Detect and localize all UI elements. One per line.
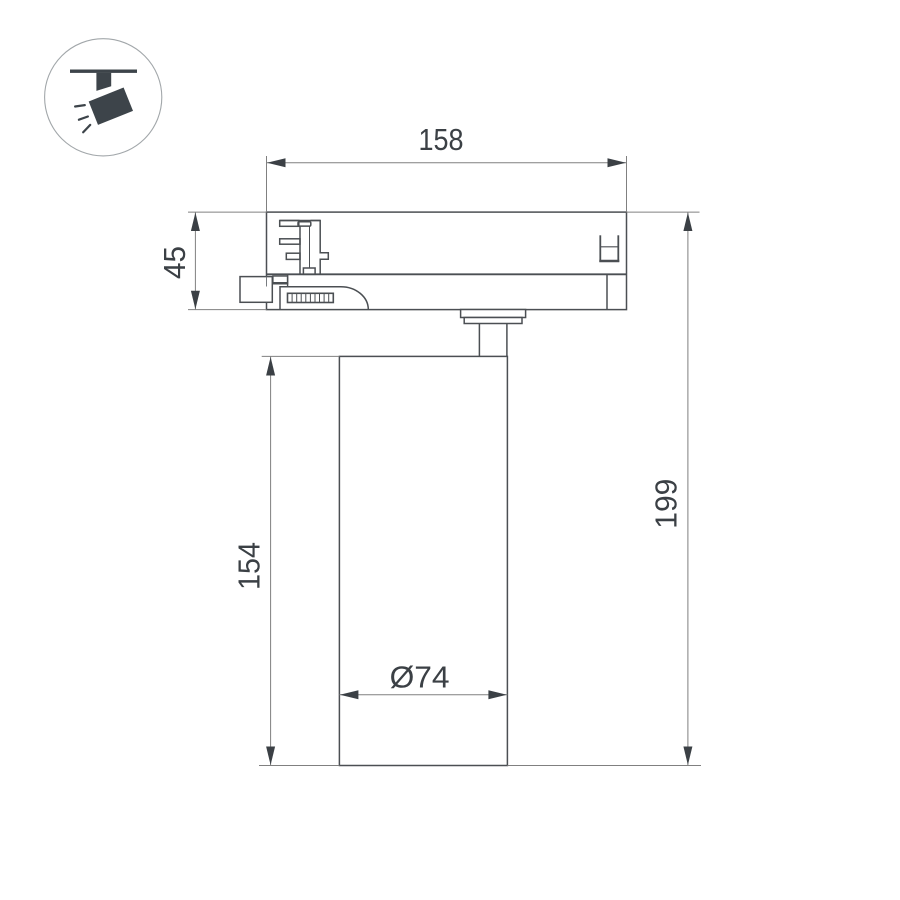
svg-text:158: 158 bbox=[419, 123, 464, 157]
svg-text:154: 154 bbox=[233, 542, 267, 590]
svg-text:45: 45 bbox=[158, 246, 192, 279]
svg-text:199: 199 bbox=[649, 479, 683, 529]
svg-text:Ø74: Ø74 bbox=[390, 660, 450, 694]
